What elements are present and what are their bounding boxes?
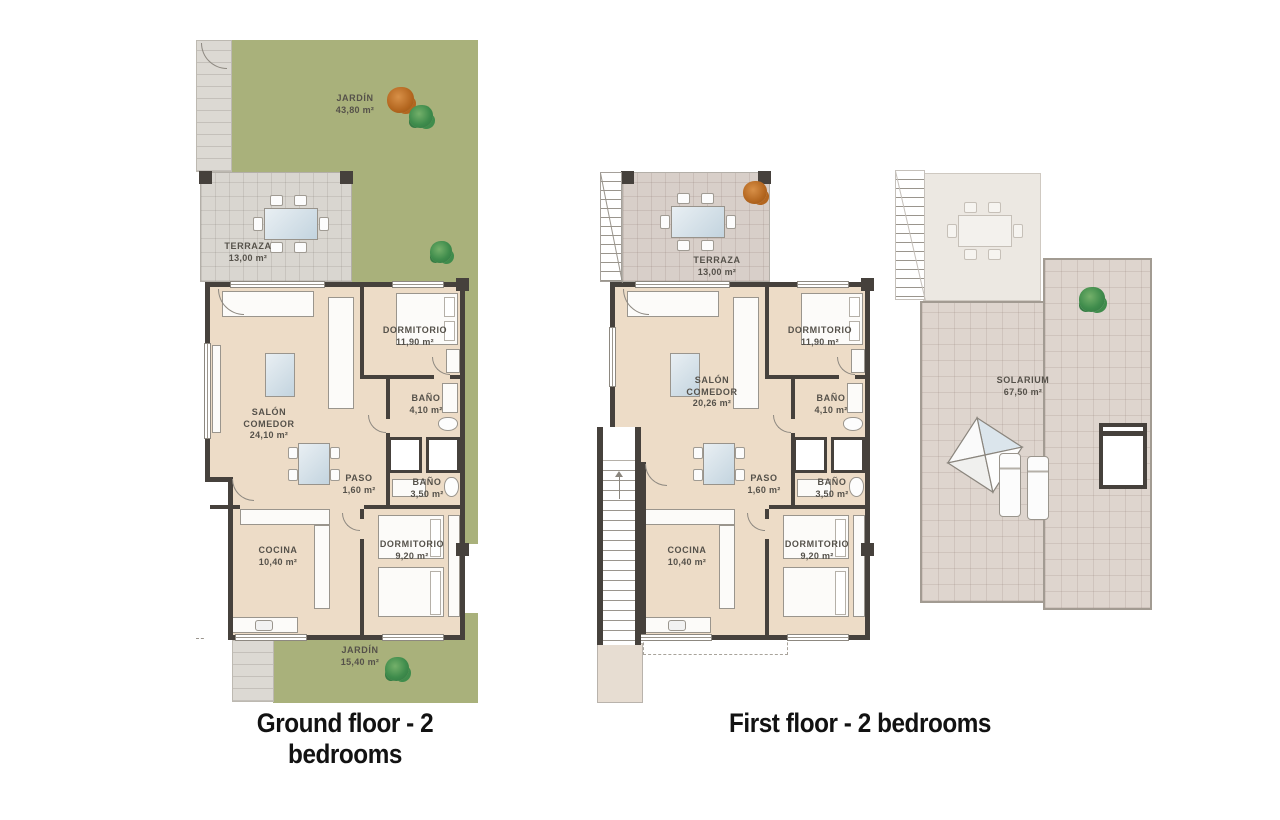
kitchen-sink-counter [641,617,711,633]
wall [769,505,865,509]
shower [831,437,865,473]
window [382,634,444,641]
shower [793,437,827,473]
terrace: TERRAZA 13,00 m² [200,172,352,282]
wardrobe [448,515,460,617]
wall-post [456,543,469,556]
wall-post [861,543,874,556]
wall [360,509,364,519]
storage-unit [1099,423,1147,489]
tree-icon [743,181,767,204]
window [635,281,730,288]
room-label-bano1: BAÑO 4,10 m² [795,393,867,416]
terrace-below-ghost [923,173,1041,301]
door-arc [837,357,855,375]
room-label-salon: SALÓN COMEDOR 20,26 m² [673,375,751,410]
wall [765,509,769,519]
window [640,634,712,641]
room-label-dormitorio2: DORMITORIO 9,20 m² [773,539,861,562]
door-arc [432,357,450,375]
door-arc [773,415,791,433]
staircase-shaft [597,427,641,645]
apartment-outline: SALÓN COMEDOR 24,10 m² DORMITORIO 11,90 … [205,282,465,640]
paved-corner-bottom [232,640,274,702]
stair-up-arrow-icon [615,467,623,477]
door-arc [645,464,667,486]
window [235,634,307,641]
wall [364,505,460,509]
room-label-terraza: TERRAZA 13,00 m² [209,241,287,264]
wall [360,375,434,379]
window [797,281,849,288]
room-label-dormitorio2: DORMITORIO 9,20 m² [368,539,456,562]
shower [426,437,460,473]
wall [765,375,839,379]
single-bed [783,567,849,617]
room-label-paso: PASO 1,60 m² [735,473,793,496]
room-label-cocina: COCINA 10,40 m² [647,545,727,568]
wall [360,287,364,375]
staircase [600,172,622,282]
window [204,343,211,439]
door-arc [232,479,254,501]
shower [388,437,422,473]
room-label-bano2: BAÑO 3,50 m² [797,477,867,500]
coffee-table [265,353,295,397]
wall-post [340,171,353,184]
dining-table [663,193,735,251]
ground-floor-plan: JARDÍN 43,80 m² JARDÍN 15,40 m² TERRAZA … [195,35,480,705]
stair-landing-below [597,643,643,703]
wall-post [456,278,469,291]
wall [855,375,865,379]
kitchen-counter [645,509,735,525]
room-label-dormitorio1: DORMITORIO 11,90 m² [780,325,860,348]
door-arc [342,513,360,531]
garden-right-of-terrace [352,170,478,282]
sofa [328,297,354,409]
wall [765,287,769,375]
wall [210,505,240,509]
room-label-bano2: BAÑO 3,50 m² [392,477,462,500]
room-label-salon: SALÓN COMEDOR 24,10 m² [230,407,308,442]
toilet [843,417,863,431]
terrace: TERRAZA 13,00 m² [622,172,770,282]
first-floor-plan: TERRAZA 13,00 m² [595,165,1155,710]
kitchen-sink-counter [228,617,298,633]
tv-sideboard [212,345,221,433]
window [787,634,849,641]
wardrobe [853,515,865,617]
room-label-jardin-bottom: JARDÍN 15,40 m² [315,645,405,668]
wall-post [621,171,634,184]
sun-lounger [1027,456,1049,520]
wall [765,539,769,635]
room-label-dormitorio1: DORMITORIO 11,90 m² [375,325,455,348]
wall [360,539,364,635]
first-floor-caption: First floor - 2 bedrooms [716,708,1004,739]
sun-lounger [999,453,1021,517]
wall-post [861,278,874,291]
toilet [438,417,458,431]
room-label-bano1: BAÑO 4,10 m² [390,393,462,416]
window [392,281,444,288]
door-arc [368,415,386,433]
wall [450,375,460,379]
kitchen-counter [240,509,330,525]
door-arc [747,513,765,531]
room-label-cocina: COCINA 10,40 m² [238,545,318,568]
room-label-jardin-top: JARDÍN 43,80 m² [310,93,400,116]
ground-floor-caption: Ground floor - 2 bedrooms [201,708,489,770]
wall-notch [205,477,233,640]
window [609,327,616,387]
room-label-solarium: SOLARIUM 67,50 m² [978,375,1068,398]
staircase-ghost [895,170,925,300]
apartment-outline: SALÓN COMEDOR 20,26 m² DORMITORIO 11,90 … [610,282,870,640]
wall-post [199,171,212,184]
dining-table-ghost [950,202,1022,260]
room-label-terraza: TERRAZA 13,00 m² [678,255,756,278]
single-bed [378,567,444,617]
room-label-paso: PASO 1,60 m² [330,473,388,496]
window [230,281,325,288]
